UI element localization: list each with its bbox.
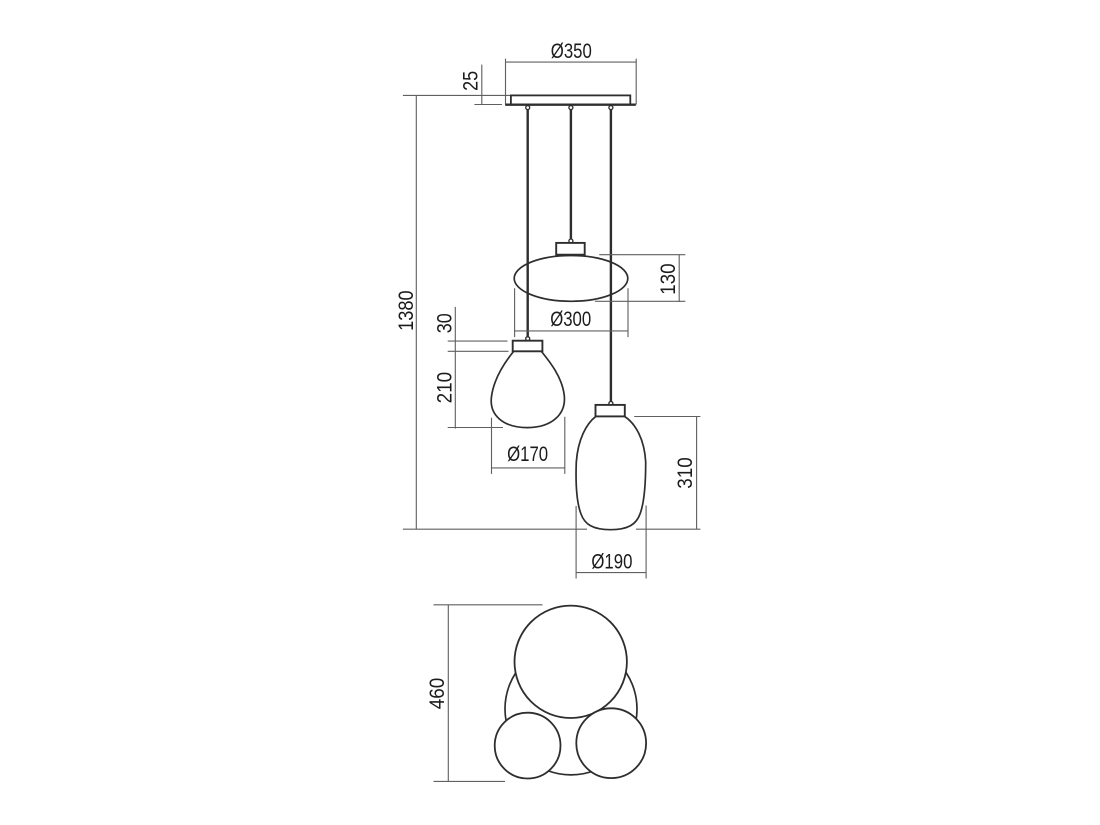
svg-text:Ø300: Ø300 [550, 308, 591, 331]
svg-text:130: 130 [657, 263, 680, 295]
svg-text:Ø190: Ø190 [591, 551, 632, 574]
svg-text:Ø350: Ø350 [551, 40, 592, 63]
svg-text:210: 210 [434, 372, 457, 404]
svg-text:30: 30 [434, 313, 457, 333]
svg-text:Ø170: Ø170 [507, 443, 548, 466]
svg-text:1380: 1380 [395, 290, 418, 331]
svg-text:460: 460 [426, 678, 449, 710]
svg-text:310: 310 [674, 457, 697, 489]
svg-text:25: 25 [460, 71, 483, 91]
